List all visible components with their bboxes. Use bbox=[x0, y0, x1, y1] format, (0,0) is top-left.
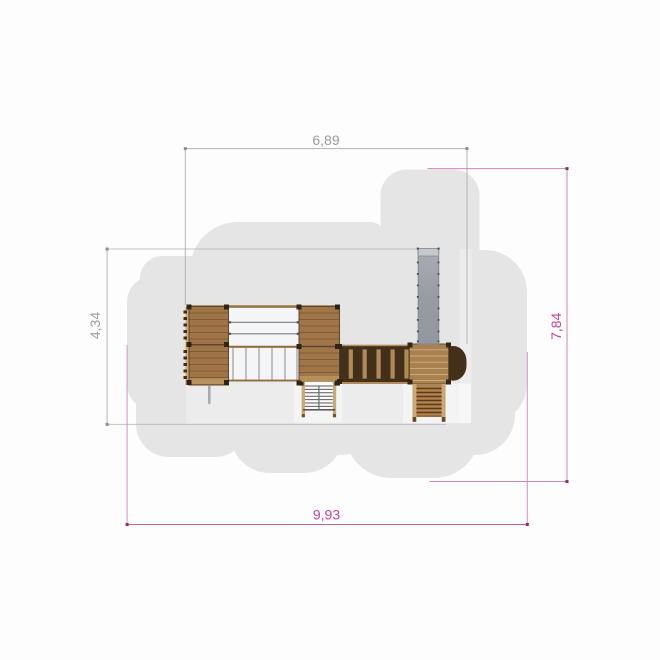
svg-text:4,34: 4,34 bbox=[87, 312, 103, 339]
svg-text:6,89: 6,89 bbox=[312, 132, 339, 148]
svg-text:9,93: 9,93 bbox=[313, 507, 340, 523]
svg-text:7,84: 7,84 bbox=[548, 312, 564, 339]
